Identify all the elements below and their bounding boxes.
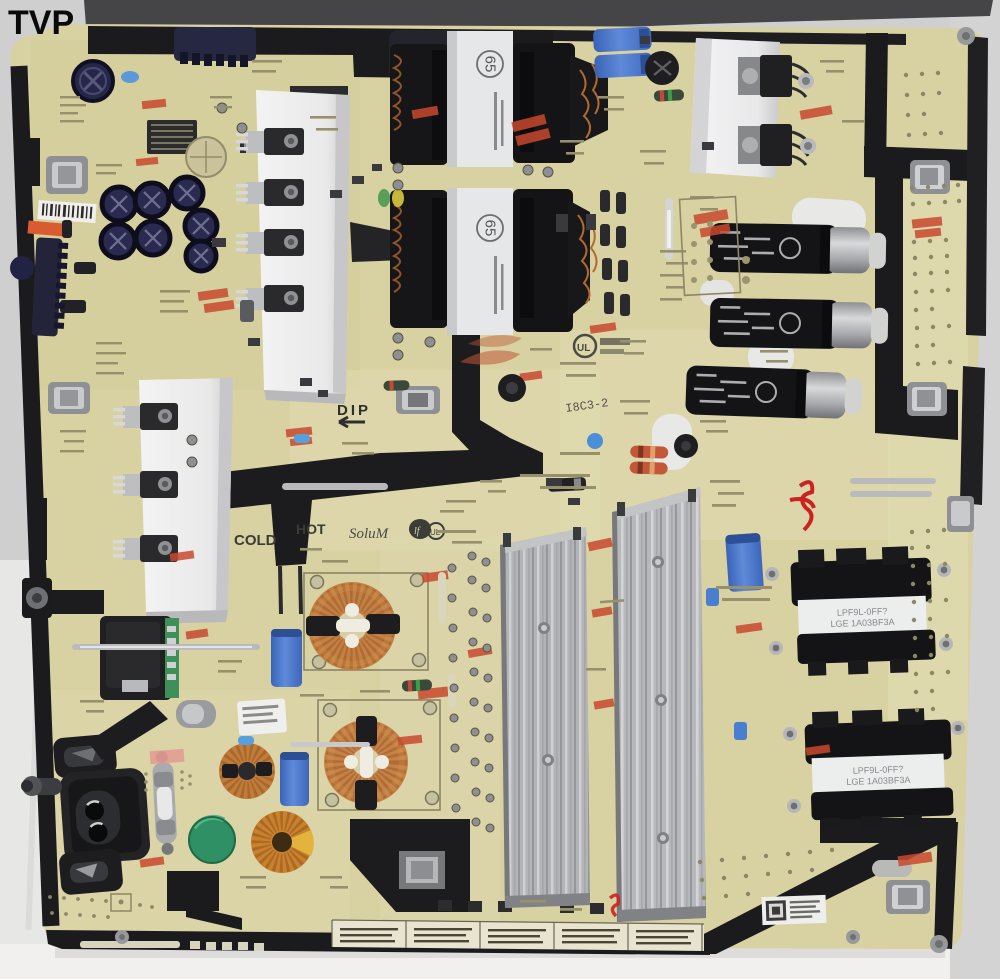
svg-text:65: 65	[482, 56, 499, 73]
svg-text:LPF9L-0FF?: LPF9L-0FF?	[853, 764, 904, 776]
svg-text:65: 65	[482, 220, 499, 237]
svg-text:DIP: DIP	[337, 402, 371, 419]
svg-text:UL: UL	[577, 343, 590, 354]
svg-text:COLD: COLD	[234, 532, 277, 549]
svg-text:HOT: HOT	[296, 521, 326, 537]
svg-text:TVP: TVP	[8, 4, 74, 42]
svg-text:LPF9L-0FF?: LPF9L-0FF?	[837, 606, 888, 618]
svg-text:SoluM: SoluM	[349, 526, 390, 542]
